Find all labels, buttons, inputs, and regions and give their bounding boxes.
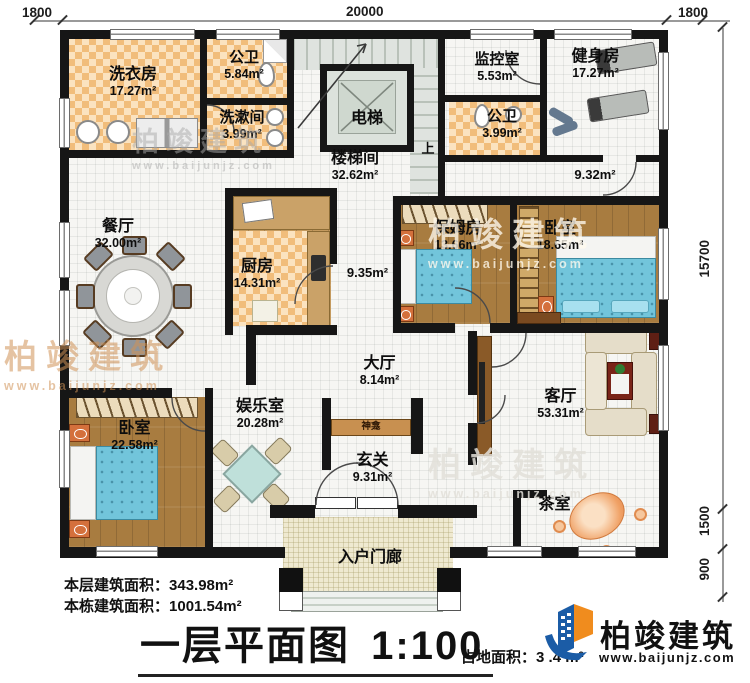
wall: [225, 188, 337, 196]
wall: [287, 30, 294, 158]
bed-quilt: [70, 446, 96, 520]
kitchen-island: [252, 300, 278, 322]
wall: [510, 196, 517, 328]
label-tea: 茶室: [527, 496, 582, 514]
coffee-table-cloth: [611, 374, 629, 394]
wall: [393, 196, 668, 205]
pillow: [562, 300, 600, 313]
room-name: 电梯: [320, 110, 414, 128]
brand-logo-icon: [541, 602, 597, 672]
wall: [60, 150, 294, 158]
porch-steps: [291, 591, 443, 612]
wall: [438, 155, 547, 162]
window: [470, 29, 534, 40]
dim-right-mid: 1500: [697, 506, 712, 536]
room-area: 3.99m²: [202, 127, 282, 141]
room-name: 厨房: [207, 258, 307, 276]
label-bedroom1: 卧室 18.65m²: [515, 220, 605, 252]
room-name: 公卫: [462, 109, 542, 126]
label-stairwell: 楼梯间 32.62m²: [305, 150, 405, 182]
wall: [636, 155, 668, 162]
label-bedroom2: 卧室 22.58m²: [92, 420, 177, 452]
window: [658, 228, 669, 300]
chair: [173, 284, 192, 309]
wall: [60, 547, 285, 558]
label-gym: 健身房 17.27m²: [548, 48, 643, 80]
floor-area-line: 本层建筑面积：343.98m²: [64, 574, 233, 595]
plant: [615, 364, 625, 374]
wall: [246, 325, 337, 335]
label-corridor-mid: 9.35m²: [330, 266, 405, 281]
room-name: 保姆房: [410, 220, 505, 238]
dim-top-right: 1800: [678, 5, 708, 20]
room-name: 洗衣房: [78, 66, 188, 84]
wall: [468, 423, 477, 465]
window: [59, 430, 70, 488]
tea-stool: [553, 520, 566, 533]
bed: [96, 446, 158, 520]
window: [658, 52, 669, 130]
nightstand: [69, 424, 90, 442]
room-area: 14.31m²: [207, 276, 307, 290]
label-laundry: 洗衣房 17.27m²: [78, 66, 188, 98]
porch-column-left: [279, 568, 303, 592]
wall: [398, 505, 477, 518]
window: [578, 546, 636, 557]
dim-right-main: 15700: [697, 240, 712, 278]
dim-top-left: 1800: [22, 5, 52, 20]
wall: [60, 388, 172, 398]
label-monitor: 监控室 5.53m²: [452, 52, 542, 83]
window: [658, 345, 669, 431]
room-area: 20.28m²: [210, 416, 310, 430]
washer: [106, 120, 130, 144]
label-washroom: 洗漱间 3.99m²: [202, 110, 282, 141]
room-area: 18.65m²: [515, 238, 605, 252]
label-game: 娱乐室 20.28m²: [210, 398, 310, 430]
label-hall: 大厅 8.14m²: [342, 355, 417, 387]
wardrobe: [76, 397, 198, 418]
plan-title-text: 一层平面图: [140, 624, 350, 668]
room-area: 17.27m²: [78, 84, 188, 98]
laundry-counter: [136, 118, 198, 148]
wall: [200, 98, 294, 105]
window: [110, 29, 195, 40]
land-area-label: 占地面积：: [461, 649, 536, 666]
wall: [393, 196, 401, 333]
room-name: 卧室: [515, 220, 605, 238]
label-shrine: 神龛: [331, 422, 411, 433]
label-dining: 餐厅 32.00m²: [68, 218, 168, 250]
porch-column-right: [437, 568, 461, 592]
porch-column-base-left: [279, 591, 303, 611]
label-stairs-up: 上: [418, 142, 438, 157]
room-area: 17.27m²: [548, 66, 643, 80]
room-name: 洗漱间: [202, 110, 282, 127]
wall: [393, 323, 455, 333]
floor-area-label: 本层建筑面积：: [64, 577, 169, 594]
room-name: 监控室: [452, 52, 542, 69]
label-bath2: 公卫 3.99m²: [462, 109, 542, 140]
label-nanny: 保姆房 13.66m²: [410, 220, 505, 252]
wall: [438, 30, 445, 202]
room-name: 入户门廊: [300, 549, 440, 567]
window: [554, 29, 632, 40]
room-name: 楼梯间: [305, 150, 405, 168]
label-porch: 入户门廊: [300, 549, 440, 567]
room-name: 大厅: [342, 355, 417, 373]
dimension-line-top: [34, 20, 730, 22]
pillow: [611, 300, 649, 313]
nightstand: [69, 520, 90, 538]
window: [96, 546, 158, 557]
plan-title: 一层平面图 1:100: [138, 613, 493, 677]
window: [487, 546, 542, 557]
shrine-text: 神龛: [361, 421, 380, 432]
room-area: 8.14m²: [342, 373, 417, 387]
wall: [330, 188, 337, 264]
dim-right-bottom: 900: [697, 558, 712, 581]
chair: [122, 338, 147, 357]
room-area: 9.31m²: [335, 470, 410, 484]
chair: [76, 284, 95, 309]
room-area: 32.62m²: [305, 168, 405, 182]
porch-column-base-right: [437, 591, 461, 611]
label-corridor-right: 9.32m²: [555, 168, 635, 183]
room-area: 32.00m²: [68, 236, 168, 250]
wall: [468, 331, 477, 395]
dresser: [517, 312, 561, 324]
room-name: 娱乐室: [210, 398, 310, 416]
room-name: 茶室: [527, 496, 582, 514]
wall: [270, 505, 315, 518]
room-area: 53.31m²: [518, 406, 603, 420]
label-living: 客厅 53.31m²: [518, 388, 603, 420]
room-area: 5.53m²: [452, 69, 542, 83]
floor-plan-page: 洗衣房 17.27m² 公卫 5.84m² 洗漱间 3.99m² 电梯 楼梯间 …: [0, 0, 750, 683]
entry-door-leaf: [357, 497, 398, 509]
up-text: 上: [421, 141, 434, 156]
stove: [311, 255, 326, 281]
dining-table-center: [124, 287, 142, 305]
room-area: 9.32m²: [555, 168, 635, 183]
room-name: 公卫: [206, 50, 282, 67]
washer: [76, 120, 100, 144]
brand-url: www.baijunjz.com: [599, 650, 735, 665]
room-name: 餐厅: [68, 218, 168, 236]
room-area: 9.35m²: [330, 266, 405, 281]
window: [59, 290, 70, 346]
label-foyer: 玄关 9.31m²: [335, 452, 410, 484]
wall: [322, 398, 331, 470]
room-area: 22.58m²: [92, 438, 177, 452]
dim-top: 20000: [346, 4, 384, 19]
room-name: 卧室: [92, 420, 177, 438]
wall: [246, 325, 256, 385]
wall: [547, 155, 603, 162]
window: [216, 29, 280, 40]
room-area: 3.99m²: [462, 126, 542, 140]
tea-stool: [634, 508, 647, 521]
label-kitchen: 厨房 14.31m²: [207, 258, 307, 290]
bed: [416, 249, 472, 304]
room-name: 客厅: [518, 388, 603, 406]
room-name: 玄关: [335, 452, 410, 470]
tv: [479, 362, 485, 424]
entry-door-leaf: [315, 497, 356, 509]
floor-area-value: 343.98m²: [169, 577, 233, 594]
label-elevator: 电梯: [320, 110, 414, 128]
wall: [411, 398, 423, 454]
room-name: 健身房: [548, 48, 643, 66]
dimension-line-right: [722, 28, 724, 602]
window: [59, 98, 70, 148]
kitchen-sink: [242, 199, 274, 223]
room-area: 13.66m²: [410, 238, 505, 252]
room-area: 5.84m²: [206, 67, 282, 81]
wall: [438, 95, 547, 102]
label-bath1: 公卫 5.84m²: [206, 50, 282, 81]
